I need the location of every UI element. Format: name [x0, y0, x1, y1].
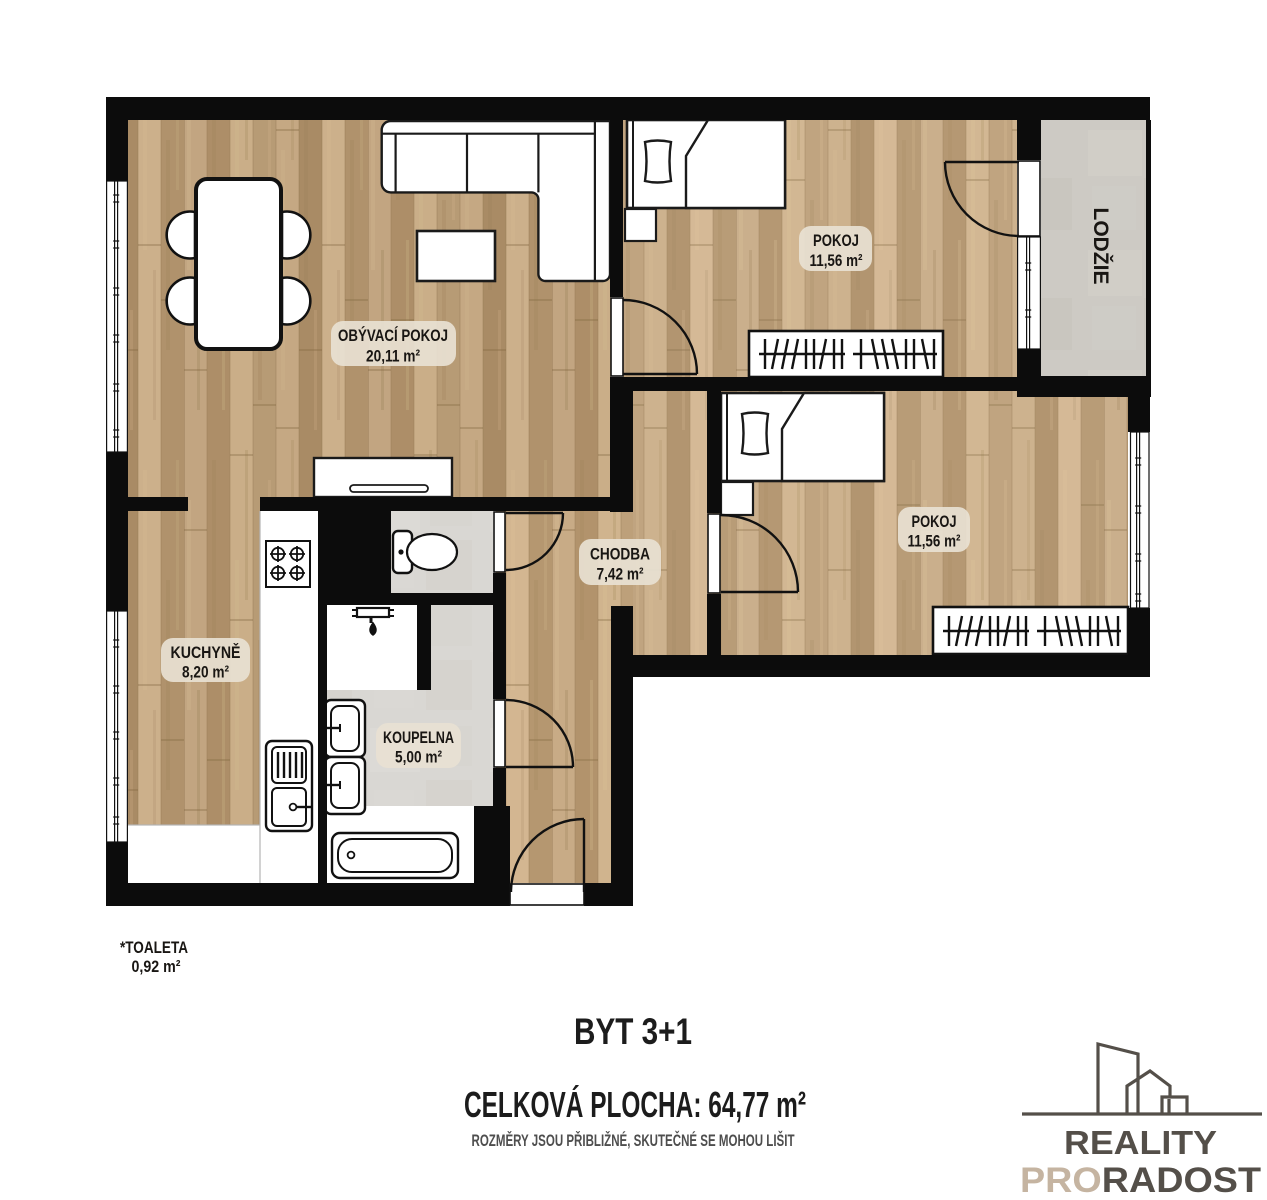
- svg-text:7,42 m²: 7,42 m²: [597, 565, 644, 584]
- svg-text:ROZMĚRY JSOU PŘIBLIŽNÉ, SKUTEČ: ROZMĚRY JSOU PŘIBLIŽNÉ, SKUTEČNÉ SE MOHO…: [472, 1131, 795, 1150]
- svg-text:PRORADOST: PRORADOST: [1020, 1161, 1261, 1200]
- svg-text:KUCHYNĚ: KUCHYNĚ: [171, 643, 241, 662]
- svg-text:CELKOVÁ PLOCHA: 64,77 m²: CELKOVÁ PLOCHA: 64,77 m²: [464, 1084, 806, 1125]
- svg-text:CHODBA: CHODBA: [590, 545, 650, 564]
- svg-text:KOUPELNA: KOUPELNA: [383, 728, 454, 747]
- svg-text:8,20 m²: 8,20 m²: [182, 663, 229, 682]
- svg-text:20,11 m²: 20,11 m²: [366, 347, 420, 366]
- svg-text:OBÝVACÍ POKOJ: OBÝVACÍ POKOJ: [338, 326, 448, 345]
- svg-text:REALITY: REALITY: [1064, 1124, 1217, 1161]
- svg-text:*TOALETA: *TOALETA: [120, 939, 188, 957]
- svg-text:LODŽIE: LODŽIE: [1089, 208, 1113, 285]
- svg-text:11,56 m²: 11,56 m²: [810, 251, 863, 270]
- svg-text:POKOJ: POKOJ: [912, 512, 957, 531]
- svg-text:5,00 m²: 5,00 m²: [395, 748, 442, 767]
- svg-text:11,56 m²: 11,56 m²: [908, 532, 961, 551]
- svg-text:BYT 3+1: BYT 3+1: [574, 1011, 692, 1052]
- svg-text:0,92 m²: 0,92 m²: [132, 958, 181, 976]
- svg-text:POKOJ: POKOJ: [813, 231, 859, 250]
